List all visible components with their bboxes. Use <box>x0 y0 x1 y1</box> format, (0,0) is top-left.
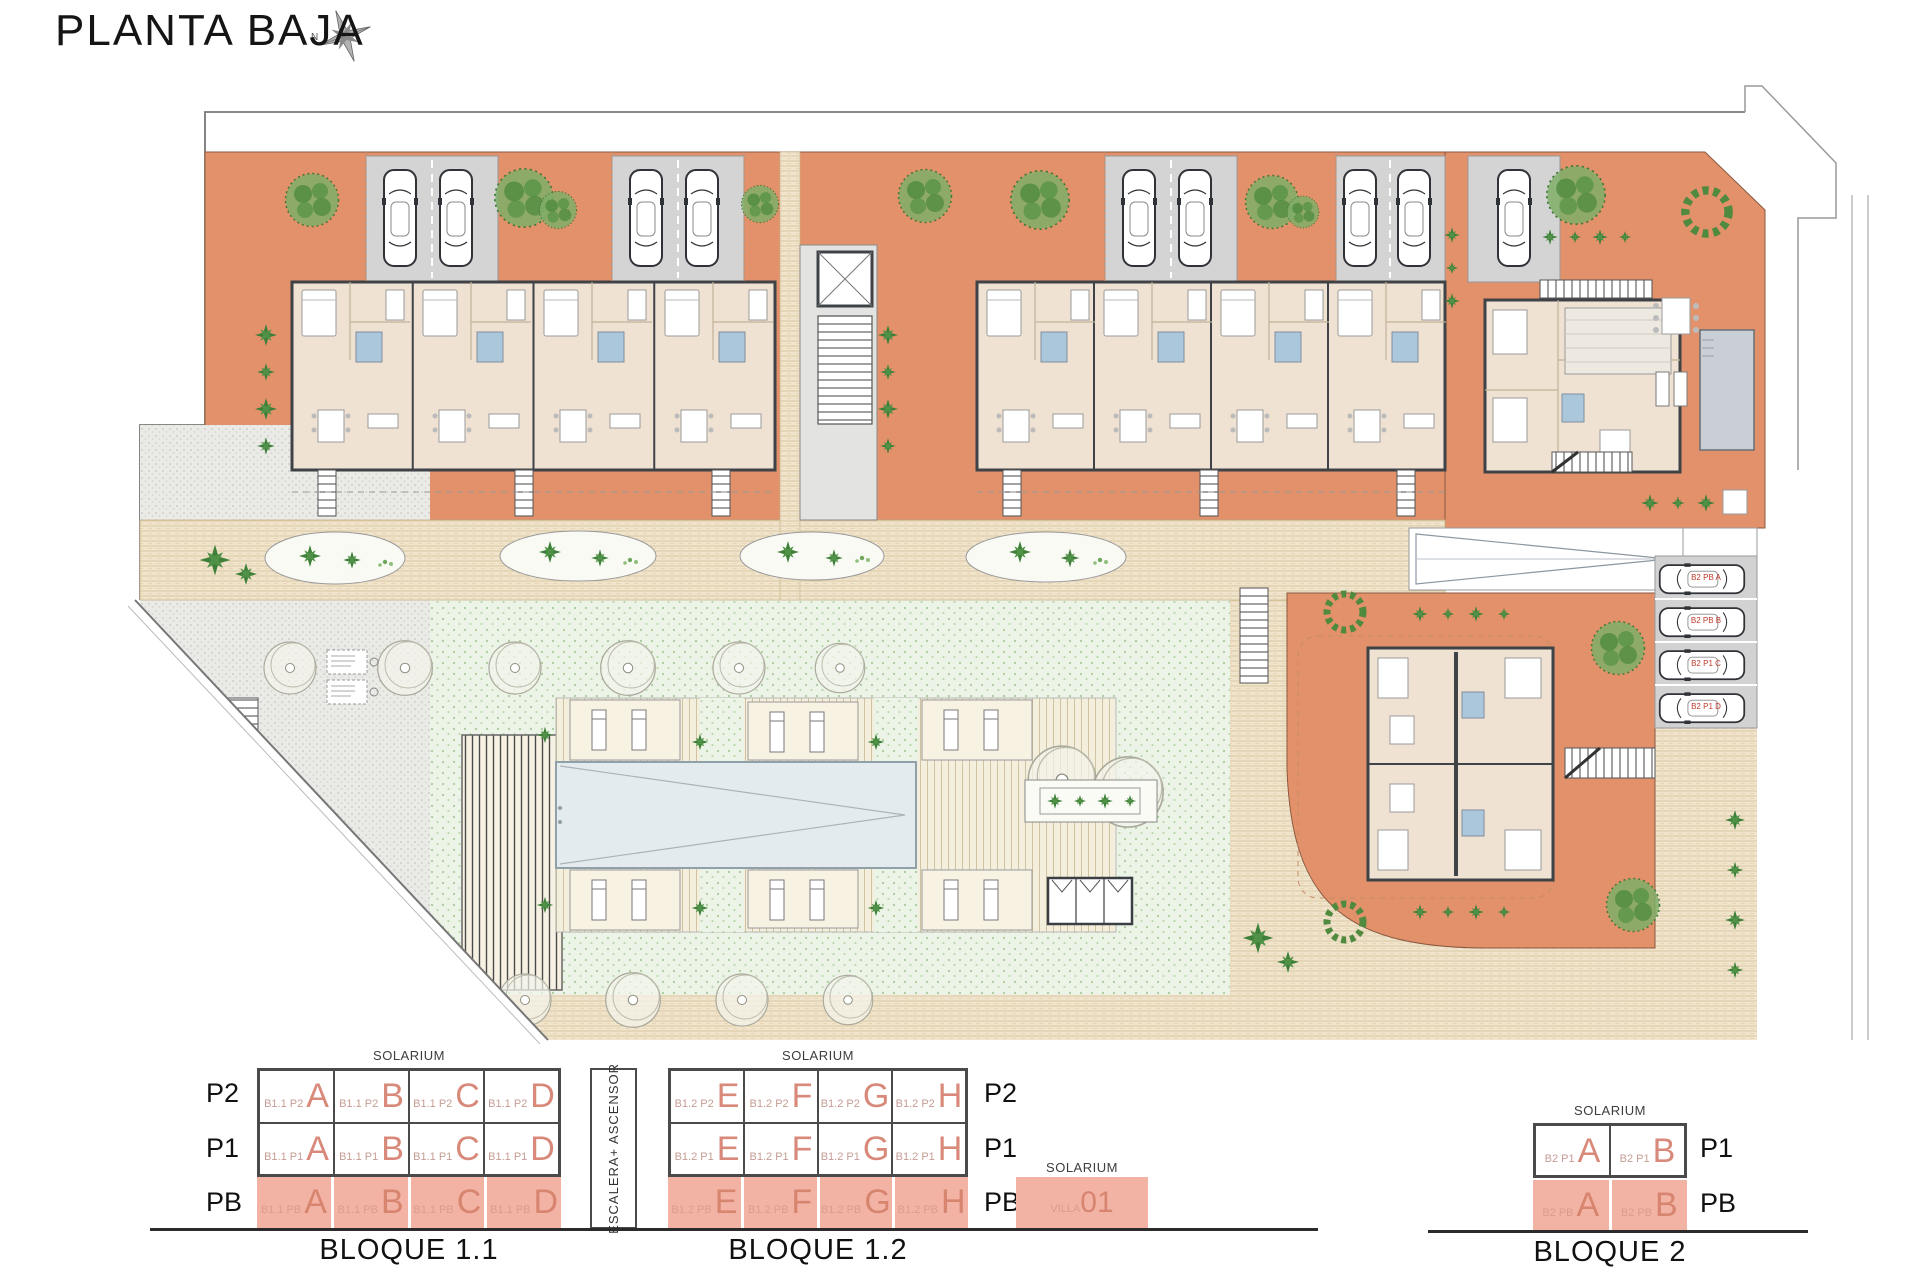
unit-cell: B1.2 PBF <box>744 1177 817 1228</box>
solarium-label-b12: SOLARIUM <box>668 1048 968 1063</box>
unit-prefix: B1.2 P1 <box>675 1151 714 1163</box>
unit-cell: B1.2 P2H <box>892 1070 966 1123</box>
unit-cell: B1.2 PBH <box>895 1177 968 1228</box>
bloque-2-name: BLOQUE 2 <box>1533 1236 1687 1269</box>
unit-prefix: B1.2 P2 <box>675 1098 714 1110</box>
unit-prefix: B1.1 P2 <box>488 1098 527 1110</box>
unit-cell: B1.1 P2C <box>409 1070 484 1123</box>
floor-label-p2-right: P2 <box>984 1078 1017 1109</box>
unit-prefix: B2 P1 <box>1620 1153 1650 1165</box>
unit-prefix: B1.1 P2 <box>339 1098 378 1110</box>
unit-letter: E <box>715 1187 738 1218</box>
floor-label-p2: P2 <box>206 1078 239 1109</box>
unit-prefix: B1.1 PB <box>338 1204 378 1216</box>
parking-label: B2 PB B <box>1691 616 1721 625</box>
unit-cell: B1.2 P1G <box>818 1123 892 1176</box>
unit-cell: B1.2 P1F <box>744 1123 818 1176</box>
bloque-1-2-pb-row: B1.2 PBE B1.2 PBF B1.2 PBG B1.2 PBH <box>668 1177 968 1228</box>
unit-cell: B2 P1A <box>1535 1125 1610 1176</box>
bloque-2-pb-row: B2 PBA B2 PBB <box>1533 1180 1687 1230</box>
parking-label: B2 P1 D <box>1691 702 1721 711</box>
stairs-elevator-label: ESCALERA+ ASCENSOR <box>606 1063 621 1234</box>
page-title: PLANTA BAJA <box>55 6 365 56</box>
swimming-pool <box>556 762 916 868</box>
unit-letter: E <box>717 1081 740 1112</box>
villa-01-box: VILLA 01 <box>1016 1177 1148 1228</box>
unit-letter: B <box>381 1081 404 1112</box>
villa-prefix: VILLA <box>1050 1203 1080 1215</box>
unit-cell: B1.1 P2B <box>334 1070 409 1123</box>
unit-prefix: B1.2 PB <box>898 1204 938 1216</box>
unit-cell: B1.1 P1C <box>409 1123 484 1176</box>
unit-letter: A <box>1577 1190 1600 1221</box>
unit-cell: B1.2 P2F <box>744 1070 818 1123</box>
unit-letter: G <box>863 1081 889 1112</box>
unit-cell: B1.2 P2E <box>670 1070 744 1123</box>
unit-prefix: B2 P1 <box>1545 1153 1575 1165</box>
unit-cell: B1.2 P1H <box>892 1123 966 1176</box>
pool-wc-hut <box>1048 878 1132 924</box>
unit-letter: B <box>1655 1190 1678 1221</box>
floor-label-pb: PB <box>206 1187 242 1218</box>
floor-label-pb-right: PB <box>984 1187 1020 1218</box>
bloque-2-parking: B2 PB A B2 PB B B2 P1 C B2 P1 D <box>1655 556 1757 728</box>
unit-cell: B1.1 P1A <box>259 1123 334 1176</box>
unit-cell: B1.2 PBG <box>820 1177 893 1228</box>
unit-letter: F <box>792 1134 813 1165</box>
unit-cell: B1.2 P1E <box>670 1123 744 1176</box>
unit-prefix: B1.2 PB <box>821 1204 861 1216</box>
bloque-1-2-building <box>977 282 1446 470</box>
unit-prefix: B1.2 P1 <box>896 1151 935 1163</box>
bloque-1-1-building <box>292 282 775 470</box>
bloque-2-upper-grid: B2 P1A B2 P1B <box>1533 1123 1687 1178</box>
stairs-elevator-column: ESCALERA+ ASCENSOR <box>590 1068 637 1229</box>
unit-letter: D <box>534 1187 559 1218</box>
unit-prefix: B1.1 PB <box>490 1204 530 1216</box>
unit-letter: C <box>457 1187 482 1218</box>
unit-prefix: B1.1 P1 <box>488 1151 527 1163</box>
unit-letter: D <box>530 1081 555 1112</box>
unit-letter: A <box>1578 1136 1601 1167</box>
solarium-label-villa: SOLARIUM <box>1016 1160 1148 1175</box>
unit-letter: C <box>455 1134 480 1165</box>
unit-cell: B1.1 P1B <box>334 1123 409 1176</box>
unit-prefix: B1.2 PB <box>671 1204 711 1216</box>
unit-prefix: B1.1 P2 <box>264 1098 303 1110</box>
unit-prefix: B1.2 P1 <box>821 1151 860 1163</box>
unit-letter: H <box>941 1187 966 1218</box>
unit-cell: B2 PBA <box>1533 1180 1609 1230</box>
parking-label: B2 PB A <box>1691 573 1721 582</box>
floor-label-p1: P1 <box>206 1133 239 1164</box>
unit-letter: H <box>938 1134 963 1165</box>
unit-prefix: B2 PB <box>1542 1207 1573 1219</box>
site-plan-drawing: B2 PB A B2 PB B B2 P1 C B2 P1 D <box>0 0 1920 1045</box>
unit-letter: H <box>938 1081 963 1112</box>
parking-label: B2 P1 C <box>1691 659 1721 668</box>
solarium-label-b2: SOLARIUM <box>1533 1103 1687 1118</box>
bloque-1-2-name: BLOQUE 1.2 <box>668 1234 968 1267</box>
solarium-label-b11: SOLARIUM <box>257 1048 561 1063</box>
unit-prefix: B1.1 PB <box>413 1204 453 1216</box>
unit-letter: E <box>717 1134 740 1165</box>
garden-stairs-east <box>1240 588 1268 683</box>
bloque-1-1-upper-grid: B1.1 P2A B1.1 P2B B1.1 P2C B1.1 P2D B1.1… <box>257 1068 561 1177</box>
unit-cell: B1.1 PBD <box>487 1177 561 1228</box>
unit-prefix: B1.1 P2 <box>413 1098 452 1110</box>
bloque-1-2-upper-grid: B1.2 P2E B1.2 P2F B1.2 P2G B1.2 P2H B1.2… <box>668 1068 968 1177</box>
unit-letter: A <box>306 1081 329 1112</box>
unit-letter: F <box>791 1187 812 1218</box>
unit-prefix: B1.2 P2 <box>750 1098 789 1110</box>
unit-prefix: B1.2 PB <box>748 1204 788 1216</box>
unit-prefix: B1.1 P1 <box>339 1151 378 1163</box>
unit-prefix: B1.1 P1 <box>264 1151 303 1163</box>
unit-letter: A <box>304 1187 327 1218</box>
unit-letter: B <box>381 1134 404 1165</box>
unit-prefix: B1.2 P2 <box>821 1098 860 1110</box>
unit-prefix: B1.1 PB <box>261 1204 301 1216</box>
unit-letter: C <box>455 1081 480 1112</box>
unit-cell: B1.1 P2D <box>484 1070 559 1123</box>
unit-cell: B1.1 PBB <box>334 1177 408 1228</box>
unit-letter: A <box>306 1134 329 1165</box>
villa-number: 01 <box>1080 1189 1113 1216</box>
ground-line-west <box>150 1228 1318 1231</box>
unit-cell: B1.1 PBC <box>411 1177 485 1228</box>
unit-letter: B <box>1653 1136 1676 1167</box>
floor-label-b2-pb: PB <box>1700 1188 1736 1219</box>
unit-cell: B2 PBB <box>1612 1180 1688 1230</box>
unit-prefix: B1.2 P2 <box>896 1098 935 1110</box>
unit-cell: B1.2 PBE <box>668 1177 741 1228</box>
bloque-1-1-name: BLOQUE 1.1 <box>257 1234 561 1267</box>
unit-cell: B2 P1B <box>1610 1125 1685 1176</box>
bloque-1-1-pb-row: B1.1 PBA B1.1 PBB B1.1 PBC B1.1 PBD <box>257 1177 561 1228</box>
unit-letter: D <box>530 1134 555 1165</box>
unit-cell: B1.1 PBA <box>257 1177 331 1228</box>
unit-letter: G <box>863 1134 889 1165</box>
unit-cell: B1.1 P1D <box>484 1123 559 1176</box>
unit-prefix: B1.1 P1 <box>413 1151 452 1163</box>
unit-cell: B1.1 P2A <box>259 1070 334 1123</box>
unit-letter: G <box>864 1187 890 1218</box>
floor-label-b2-p1: P1 <box>1700 1133 1733 1164</box>
unit-letter: F <box>792 1081 813 1112</box>
unit-prefix: B2 PB <box>1621 1207 1652 1219</box>
floor-plan-sheet: B2 PB A B2 PB B B2 P1 C B2 P1 D <box>0 0 1920 1280</box>
unit-cell: B1.2 P2G <box>818 1070 892 1123</box>
unit-letter: B <box>381 1187 404 1218</box>
unit-prefix: B1.2 P1 <box>750 1151 789 1163</box>
floor-label-p1-right: P1 <box>984 1133 1017 1164</box>
stair-elevator-core <box>800 245 877 520</box>
ground-line-east <box>1428 1230 1808 1233</box>
